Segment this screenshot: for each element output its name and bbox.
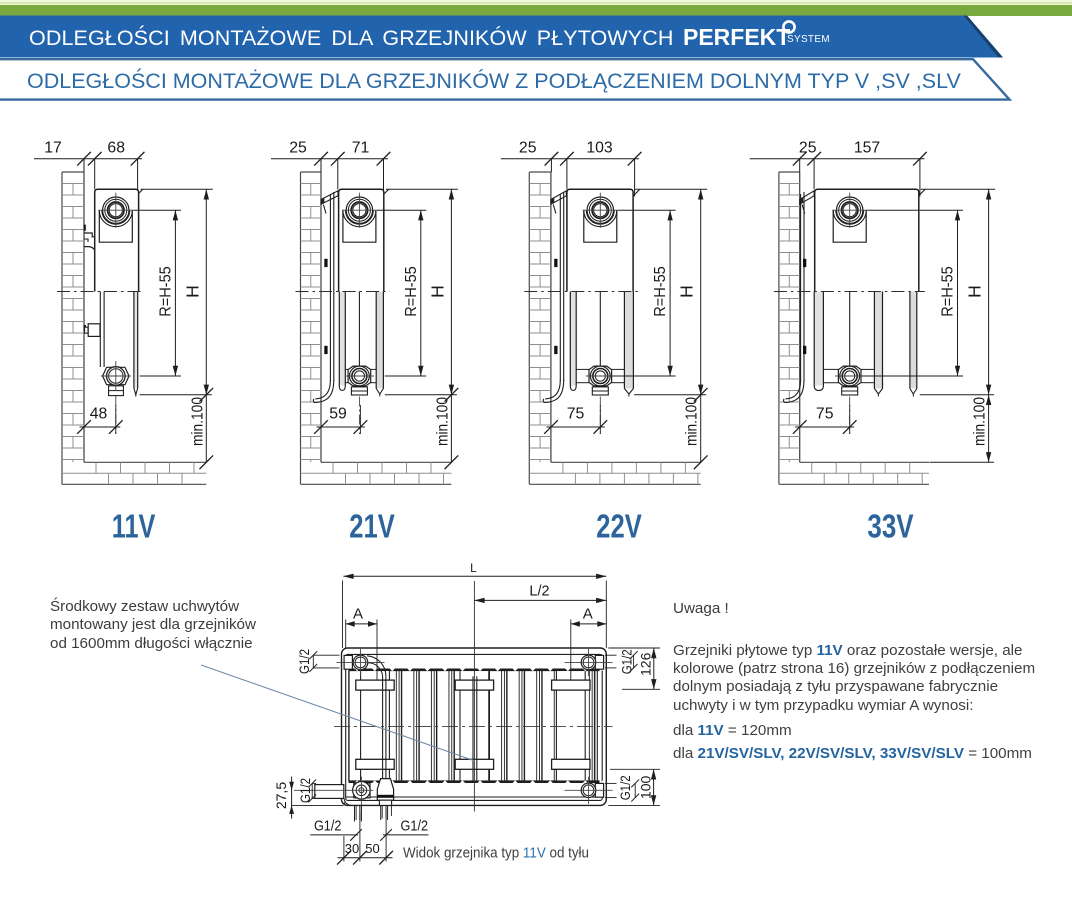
svg-text:H: H [965, 285, 985, 298]
svg-text:G1/2: G1/2 [296, 649, 312, 674]
svg-text:157: 157 [854, 140, 880, 157]
svg-text:75: 75 [816, 406, 834, 423]
svg-text:R=H-55: R=H-55 [157, 266, 174, 317]
svg-text:Widok grzejnika typ 11V od tył: Widok grzejnika typ 11V od tyłu [403, 845, 589, 862]
svg-text:25: 25 [519, 140, 537, 157]
svg-text:25: 25 [289, 140, 307, 157]
svg-text:59: 59 [329, 406, 347, 423]
svg-text:R=H-55: R=H-55 [403, 266, 420, 317]
svg-text:G1/2: G1/2 [401, 818, 429, 835]
svg-text:126: 126 [638, 652, 654, 676]
svg-text:H: H [677, 285, 697, 298]
svg-text:103: 103 [586, 140, 613, 157]
svg-text:R=H-55: R=H-55 [940, 266, 957, 317]
svg-text:68: 68 [107, 140, 125, 157]
svg-text:48: 48 [90, 406, 108, 423]
svg-text:25: 25 [799, 140, 817, 157]
svg-text:G1/2: G1/2 [619, 649, 635, 674]
svg-text:22V: 22V [596, 508, 642, 545]
svg-text:33V: 33V [867, 508, 913, 545]
svg-text:H: H [427, 285, 447, 298]
svg-text:min.100: min.100 [684, 397, 701, 446]
svg-text:L: L [470, 561, 477, 575]
svg-text:min.100: min.100 [189, 397, 206, 446]
svg-text:L/2: L/2 [529, 584, 549, 600]
svg-text:A: A [583, 606, 593, 623]
svg-text:G1/2: G1/2 [314, 818, 342, 835]
svg-text:min.100: min.100 [972, 397, 989, 446]
svg-text:H: H [182, 285, 202, 298]
svg-text:11V: 11V [112, 508, 156, 545]
svg-text:27,5: 27,5 [273, 782, 289, 809]
svg-text:75: 75 [567, 406, 585, 423]
svg-text:R=H-55: R=H-55 [652, 266, 669, 317]
svg-text:G1/2: G1/2 [297, 778, 313, 803]
svg-text:50: 50 [365, 841, 379, 856]
svg-text:30: 30 [345, 841, 359, 856]
svg-text:21V: 21V [349, 508, 395, 545]
svg-text:17: 17 [44, 140, 62, 157]
svg-text:min.100: min.100 [434, 397, 451, 446]
svg-text:G1/2: G1/2 [617, 775, 633, 800]
svg-text:A: A [353, 606, 363, 623]
svg-text:100: 100 [638, 776, 654, 800]
svg-text:71: 71 [352, 140, 370, 157]
